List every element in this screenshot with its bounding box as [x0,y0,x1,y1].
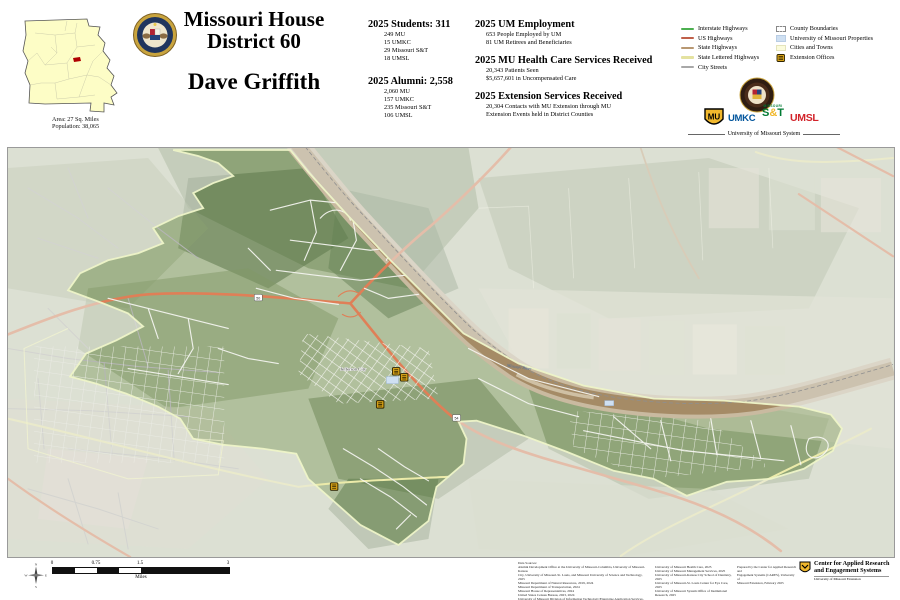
city-label: Jefferson City [340,367,367,372]
cares-subtitle: University of Missouri Extension [814,576,889,582]
compass-rose-icon: N S E W [24,561,48,589]
cares-logo-block: Center for Applied Research and Engageme… [799,561,889,581]
legend-row-ushwy: US Highways [681,34,759,44]
lettered-highway-line-swatch [681,56,694,58]
divider-line [803,134,840,135]
um-system-label: University of Missouri System [728,131,801,137]
area-label: Area: 27 Sq. Miles [52,116,99,123]
credit-line: University of Missouri-Kansas City Schoo… [655,573,735,581]
alumni-item: 2,060 MU [384,88,470,96]
umkc-logo: UMKC [728,113,755,124]
scale-bar: 0 0.75 1.5 3 Miles [52,561,230,580]
cares-name-line2: and Engagement Systems [814,568,889,575]
map-canvas: 50 54 Jefferson City Missouri River [8,148,894,557]
students-heading: 2025 Students: 311 [368,19,470,31]
legend-row-county: County Boundaries [776,24,873,34]
legend-label: City Streets [698,64,727,71]
extension-office-marker [330,483,338,491]
data-sources-column-1: Data Sources: Alumni Development Office … [518,561,650,600]
legend-row-extoffice: Extension Offices [776,53,873,63]
svg-text:54: 54 [455,417,459,421]
scale-tick: 0 [51,561,54,566]
students-item: 29 Missouri S&T [384,47,470,55]
extension-office-marker [376,401,384,409]
mu-logo: MU [703,107,725,129]
alumni-item: 157 UMKC [384,96,470,104]
legend-row-lettered: State Lettered Highways [681,53,759,63]
alumni-item: 106 UMSL [384,112,470,120]
district-aerial-map: 50 54 Jefferson City Missouri River [7,147,895,558]
title-line2: District 60 [156,30,352,52]
credit-line: University of Missouri-St. Louis Center … [655,581,735,589]
mst-logo-main: S&T [762,107,784,119]
extension-item: 20,304 Contacts with MU Extension throug… [486,103,675,111]
stats-column-1: 2025 Students: 311 249 MU 15 UMKC 29 Mis… [368,19,470,120]
legend-label: US Highways [698,35,733,42]
legend-row-cities: Cities and Towns [776,43,873,53]
prepared-line: Missouri Extension, February 2025 [737,582,797,586]
legend-row-streets: City Streets [681,62,759,72]
alumni-heading: 2025 Alumni: 2,558 [368,76,470,88]
svg-text:S: S [35,585,37,589]
us-highway-line-swatch [681,37,694,39]
legend-label: Extension Offices [790,54,834,61]
shield-54: 54 [453,415,461,422]
scale-bar-segments [52,567,230,574]
extension-office-marker [392,368,400,376]
students-item: 15 UMKC [384,39,470,47]
healthcare-item: 20,343 Patients Seen [486,67,675,75]
legend-label: Cities and Towns [790,44,833,51]
data-sources-column-2: University of Missouri Health Care, 2025… [655,565,735,597]
extension-heading: 2025 Extension Services Received [475,91,675,103]
legend-label: Interstate Highways [698,25,748,32]
extension-item: Extension Events held in District Counti… [486,111,675,119]
title-line1: Missouri House [156,8,352,30]
employment-item: 81 UM Retirees and Beneficiaries [486,39,675,47]
inset-caption: Area: 27 Sq. Miles Population: 38,065 [52,116,99,130]
employment-item: 653 People Employed by UM [486,31,675,39]
legend-label: County Boundaries [790,25,838,32]
um-system-label-row: University of Missouri System [688,131,840,137]
page-title: Missouri House District 60 Dave Griffith [156,8,352,95]
extension-stats: 2025 Extension Services Received 20,304 … [475,91,675,119]
legend-boxes: County Boundaries University of Missouri… [776,24,873,62]
alumni-stats: 2025 Alumni: 2,558 2,060 MU 157 UMKC 235… [368,76,470,120]
healthcare-stats: 2025 MU Health Care Services Received 20… [475,55,675,83]
missouri-state-inset-map [15,13,130,116]
stats-column-2: 2025 UM Employment 653 People Employed b… [475,19,675,119]
alumni-item: 235 Missouri S&T [384,104,470,112]
interstate-line-swatch [681,28,694,30]
scale-unit: Miles [52,575,230,580]
cares-shield-icon [799,561,811,575]
legend-lines: Interstate Highways US Highways State Hi… [681,24,759,72]
county-boundary-swatch [776,26,786,33]
scale-ticks: 0 0.75 1.5 3 [52,561,230,567]
healthcare-heading: 2025 MU Health Care Services Received [475,55,675,67]
credit-line: Alumni Development Office at the Univers… [518,565,650,573]
state-highway-line-swatch [681,47,694,49]
legend-row-umprop: University of Missouri Properties [776,34,873,44]
employment-stats: 2025 UM Employment 653 People Employed b… [475,19,675,47]
scale-tick: 1.5 [137,561,143,566]
students-item: 18 UMSL [384,55,470,63]
prepared-by-note: Prepared by the Center for Applied Resea… [737,566,797,586]
city-street-line-swatch [681,66,694,68]
legend-row-interstate: Interstate Highways [681,24,759,34]
credit-line: City, University of Missouri-St. Louis, … [518,573,650,581]
umsl-logo: UMSL [790,112,819,124]
divider-line [688,134,725,135]
legend-row-statehwy: State Highways [681,43,759,53]
legend-label: State Highways [698,44,737,51]
legend-label: State Lettered Highways [698,54,759,61]
um-properties-swatch [776,35,786,42]
students-item: 249 MU [384,31,470,39]
shield-50: 50 [254,294,262,301]
svg-text:N: N [35,563,38,567]
svg-text:50: 50 [256,296,260,300]
svg-text:W: W [24,574,28,578]
employment-heading: 2025 UM Employment [475,19,675,31]
scale-tick: 3 [227,561,230,566]
scale-tick: 0.75 [92,561,101,566]
outside-district-wash [8,148,894,557]
extension-office-icon [776,54,786,62]
district-map-page: Area: 27 Sq. Miles Population: 38,065 Mi… [0,0,900,600]
extension-office-marker [400,374,408,382]
students-stats: 2025 Students: 311 249 MU 15 UMKC 29 Mis… [368,19,470,63]
cities-towns-swatch [776,45,786,52]
healthcare-item: $5,657,601 in Uncompensated Care [486,75,675,83]
missouri-outline [23,19,117,112]
representative-name: Dave Griffith [156,69,352,95]
credit-line: University of Missouri System Office of … [655,589,735,597]
legend-label: University of Missouri Properties [790,35,873,42]
svg-text:E: E [45,574,47,578]
mst-logo: MISSOURI S&T [760,104,786,119]
population-label: Population: 38,065 [52,123,99,130]
svg-text:MU: MU [708,113,721,122]
